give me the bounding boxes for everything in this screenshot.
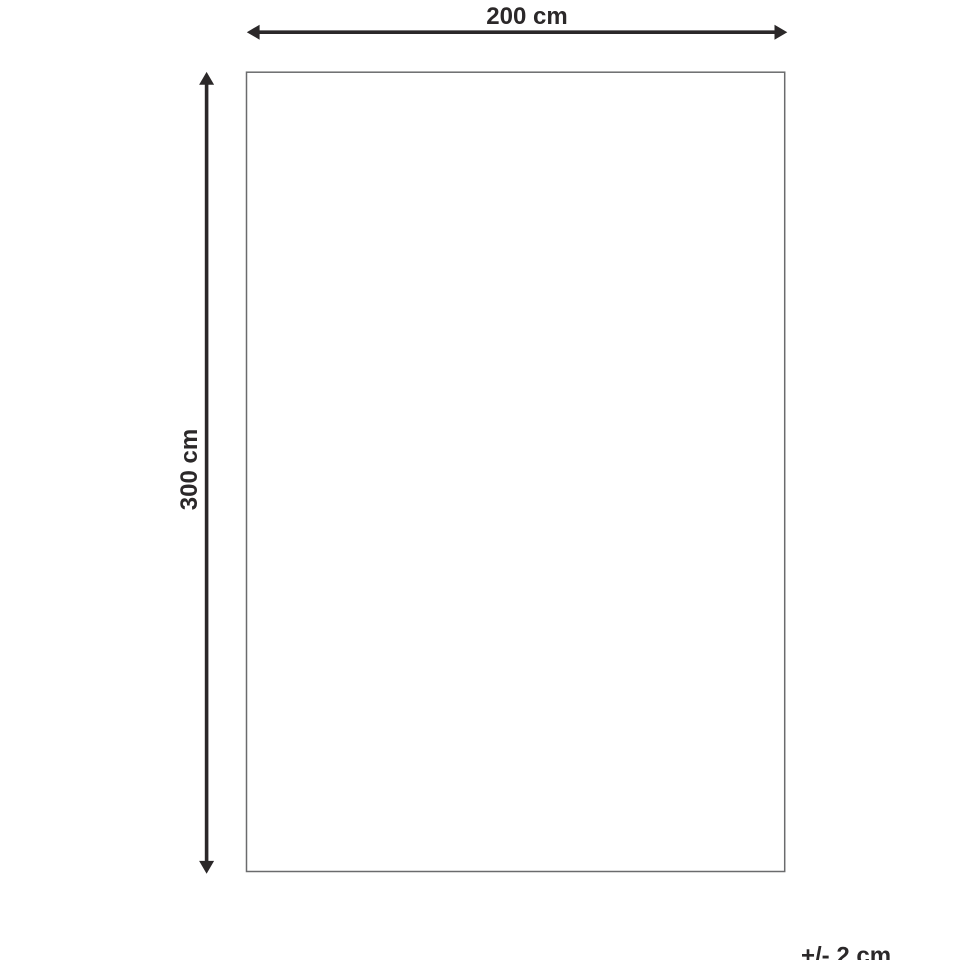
svg-text:+/- 2 cm: +/- 2 cm	[801, 943, 891, 960]
svg-text:300 cm: 300 cm	[176, 429, 203, 510]
svg-text:200 cm: 200 cm	[486, 3, 567, 30]
